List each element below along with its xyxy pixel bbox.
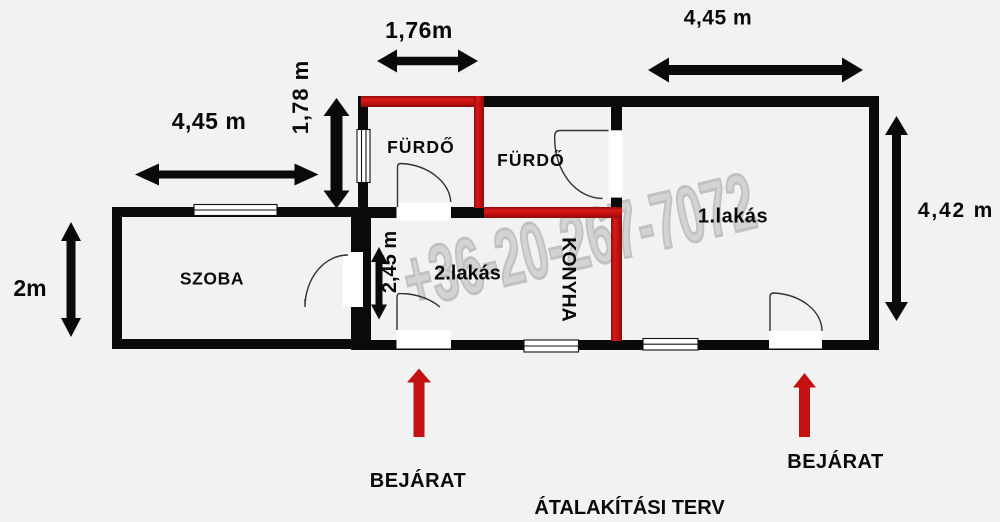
svg-text:1.lakás: 1.lakás [698, 206, 768, 228]
svg-text:SZOBA: SZOBA [180, 269, 244, 289]
svg-text:1,78 m: 1,78 m [288, 60, 313, 135]
svg-text:FÜRDŐ: FÜRDŐ [497, 149, 565, 170]
svg-text:BEJÁRAT: BEJÁRAT [370, 469, 466, 492]
svg-text:4,42 m: 4,42 m [918, 199, 994, 222]
svg-text:FÜRDŐ: FÜRDŐ [387, 136, 455, 157]
svg-text:4,45 m: 4,45 m [172, 108, 247, 134]
svg-text:BEJÁRAT: BEJÁRAT [787, 450, 883, 473]
svg-text:4,45 m: 4,45 m [684, 7, 752, 30]
svg-text:2m: 2m [13, 275, 46, 301]
svg-text:2.lakás: 2.lakás [434, 263, 501, 285]
svg-text:KONYHA: KONYHA [557, 237, 579, 322]
svg-text:1,76m: 1,76m [385, 17, 453, 43]
svg-text:2,45 m: 2,45 m [379, 231, 401, 293]
svg-text:ÁTALAKÍTÁSI TERV: ÁTALAKÍTÁSI TERV [534, 496, 725, 519]
